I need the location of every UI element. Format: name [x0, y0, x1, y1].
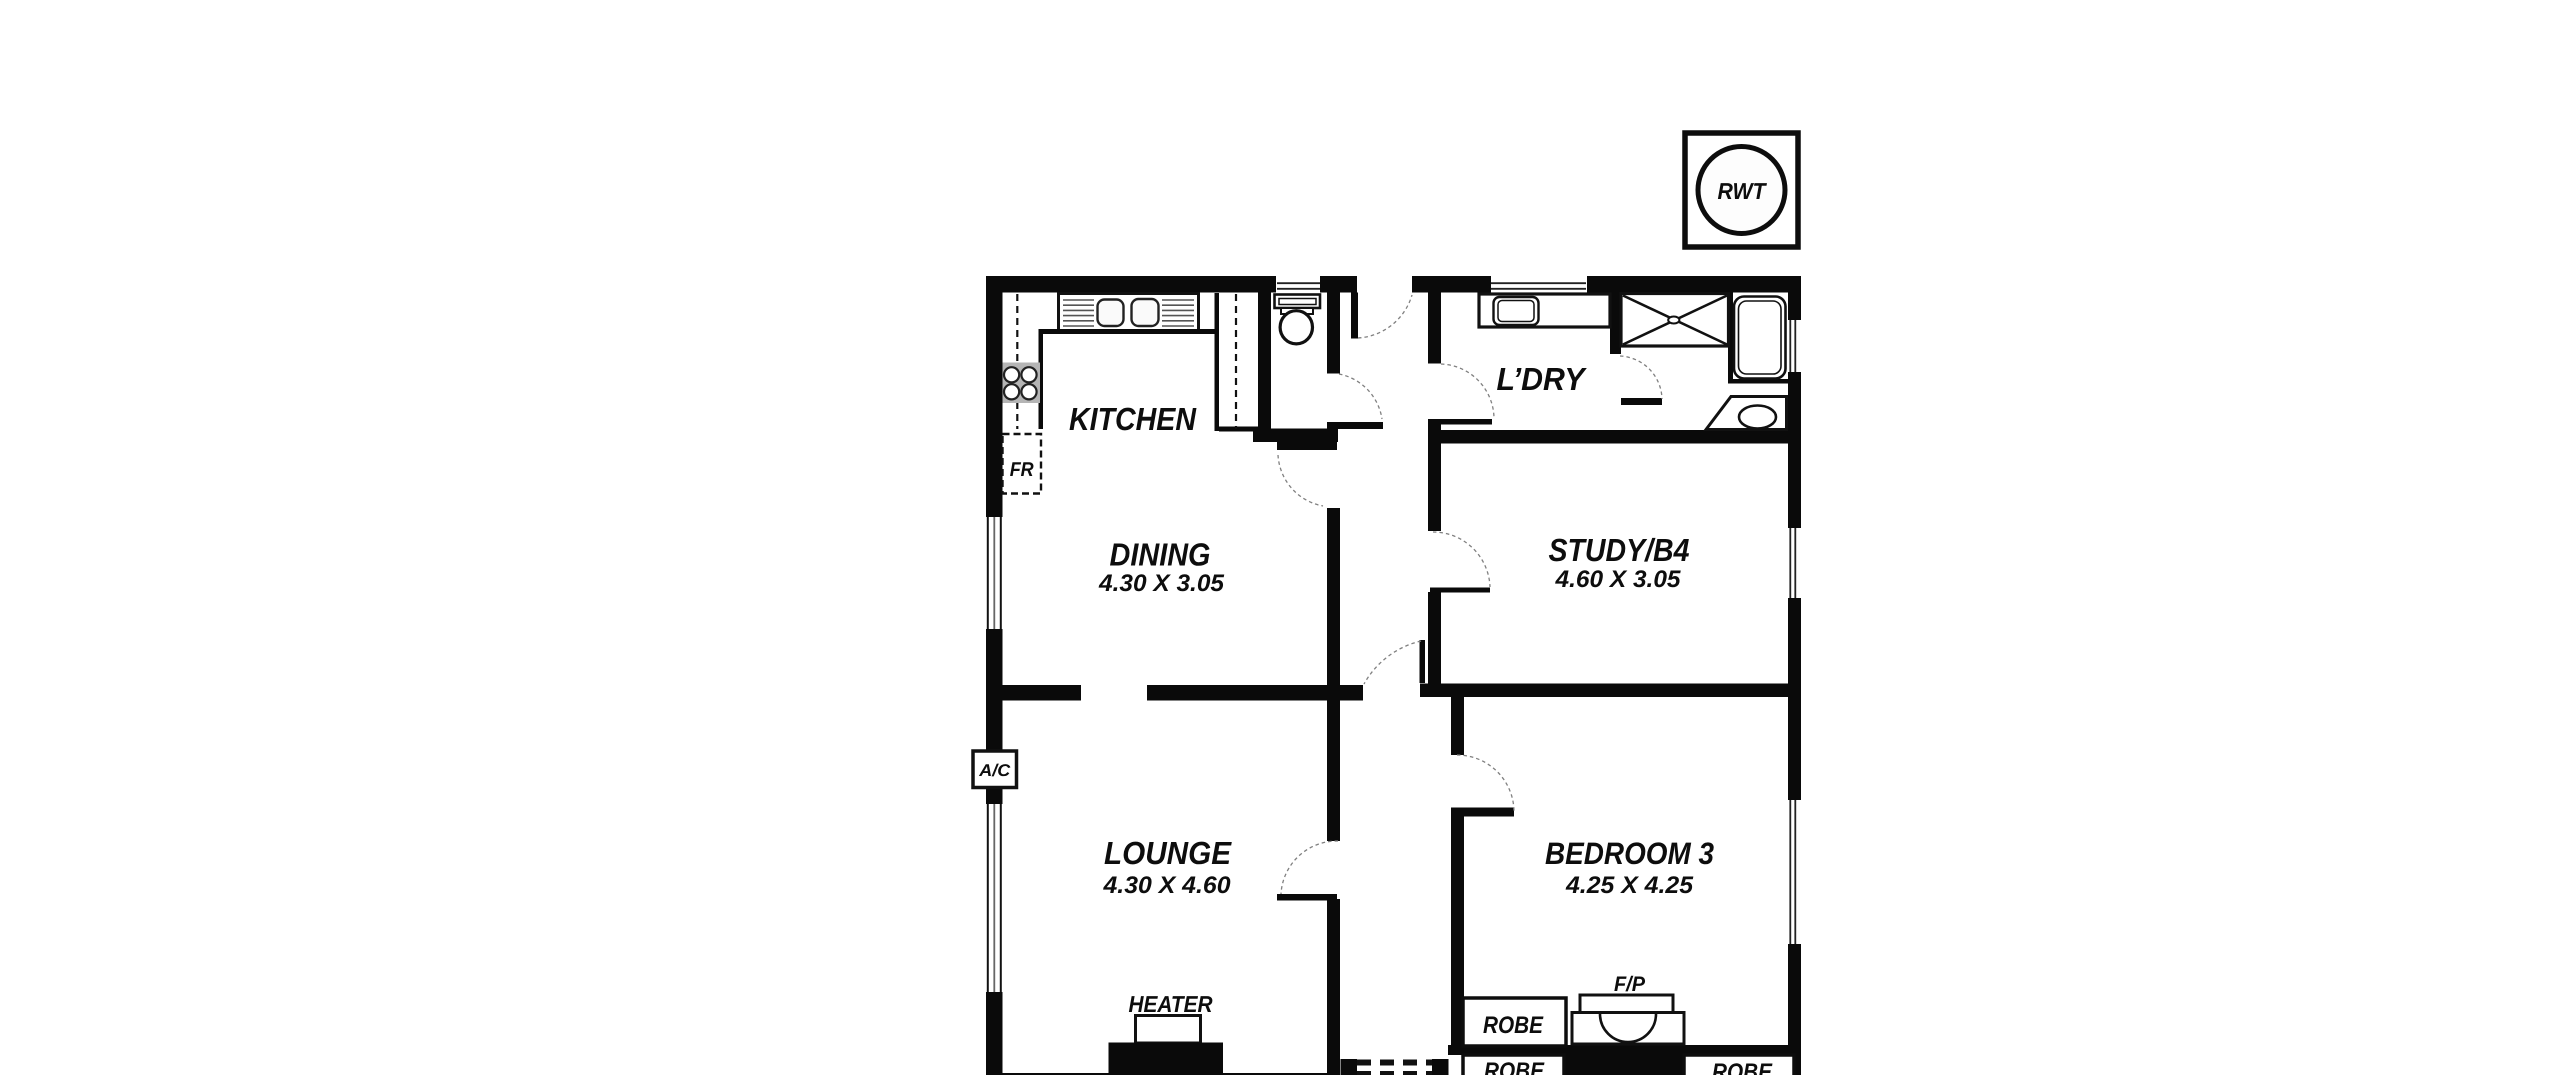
svg-text:4.25 X 4.25: 4.25 X 4.25: [1565, 872, 1694, 899]
svg-text:ROBE: ROBE: [1712, 1059, 1773, 1075]
svg-text:FR: FR: [1010, 459, 1034, 481]
svg-text:BEDROOM 3: BEDROOM 3: [1545, 836, 1714, 871]
svg-text:A/C: A/C: [978, 761, 1011, 780]
svg-text:KITCHEN: KITCHEN: [1069, 401, 1197, 437]
svg-text:L’DRY: L’DRY: [1497, 361, 1588, 397]
svg-text:ROBE: ROBE: [1484, 1058, 1545, 1075]
svg-text:F/P: F/P: [1614, 973, 1646, 996]
svg-text:4.30 X 3.05: 4.30 X 3.05: [1098, 570, 1225, 597]
svg-text:RWT: RWT: [1718, 178, 1768, 204]
svg-text:4.60 X 3.05: 4.60 X 3.05: [1554, 566, 1681, 593]
svg-text:DINING: DINING: [1110, 537, 1211, 573]
svg-text:HEATER: HEATER: [1129, 991, 1213, 1017]
svg-text:ROBE: ROBE: [1483, 1012, 1544, 1039]
svg-text:LOUNGE: LOUNGE: [1104, 835, 1233, 871]
svg-text:STUDY/B4: STUDY/B4: [1549, 532, 1690, 568]
svg-text:4.30 X 4.60: 4.30 X 4.60: [1102, 872, 1231, 899]
